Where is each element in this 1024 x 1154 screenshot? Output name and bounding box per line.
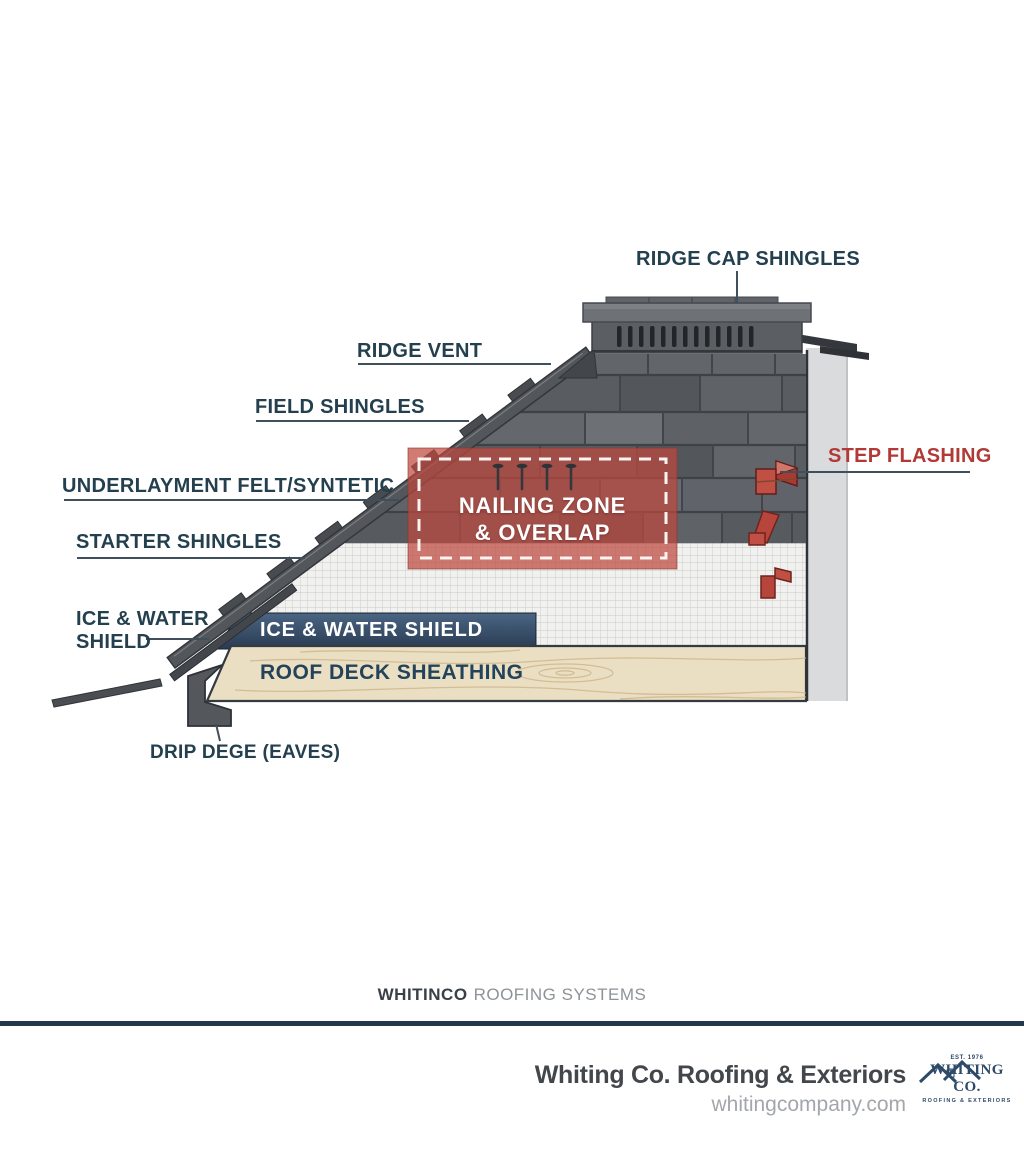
tagline-suffix: ROOFING SYSTEMS [474, 985, 647, 1004]
label-drip-edge: DRIP DEGE (EAVES) [150, 743, 340, 764]
footer-tagline: WHITINCOROOFING SYSTEMS [0, 985, 1024, 1005]
label-ridge-cap-shingles: RIDGE CAP SHINGLES [636, 248, 860, 270]
tagline-brand: WHITINCO [378, 985, 468, 1004]
label-underlayment: UNDERLAYMENT FELT/SYNTETIC [62, 475, 394, 497]
whiting-logo-icon [918, 1058, 982, 1084]
infographic-page: RIDGE CAP SHINGLES RIDGE VENT FIELD SHIN… [0, 0, 1024, 1154]
footer-divider [0, 1021, 1024, 1026]
label-ice-water-banner: ICE & WATER SHIELD [260, 619, 483, 642]
company-name: Whiting Co. Roofing & Exteriors [535, 1061, 906, 1090]
logo-subtitle: ROOFING & EXTERIORS [918, 1098, 1016, 1104]
company-website[interactable]: whitingcompany.com [711, 1093, 906, 1117]
label-nailing-line2: & OVERLAP [408, 519, 677, 546]
eave-membrane-tip-graphic [52, 679, 162, 707]
label-nailing-line1: NAILING ZONE [408, 492, 677, 519]
whiting-logo: EST. 1976 WHITING CO. ROOFING & EXTERIOR… [918, 1058, 1016, 1104]
label-ridge-vent: RIDGE VENT [357, 340, 482, 362]
label-starter-shingles: STARTER SHINGLES [76, 531, 282, 553]
label-ice-water-shield: ICE & WATER SHIELD [76, 608, 209, 654]
label-step-flashing: STEP FLASHING [828, 445, 992, 467]
side-wall-graphic [797, 334, 869, 701]
label-ice-water-line1: ICE & WATER [76, 608, 209, 631]
label-nailing-zone: NAILING ZONE & OVERLAP [408, 492, 677, 546]
label-field-shingles: FIELD SHINGLES [255, 396, 425, 418]
label-ice-water-line2: SHIELD [76, 631, 209, 654]
label-roof-deck: ROOF DECK SHEATHING [260, 661, 523, 685]
